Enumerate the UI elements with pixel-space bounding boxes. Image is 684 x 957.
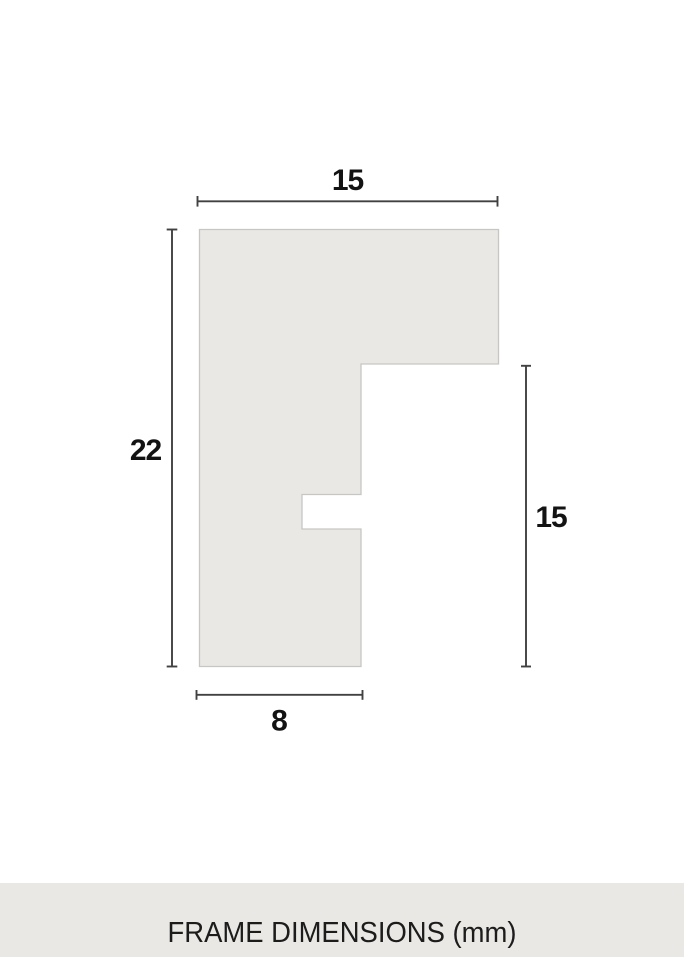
svg-text:FRAME DIMENSIONS (mm): FRAME DIMENSIONS (mm) bbox=[168, 917, 517, 949]
svg-text:15: 15 bbox=[535, 501, 567, 534]
svg-text:22: 22 bbox=[130, 434, 162, 467]
svg-text:8: 8 bbox=[271, 705, 288, 738]
svg-text:15: 15 bbox=[332, 164, 364, 197]
